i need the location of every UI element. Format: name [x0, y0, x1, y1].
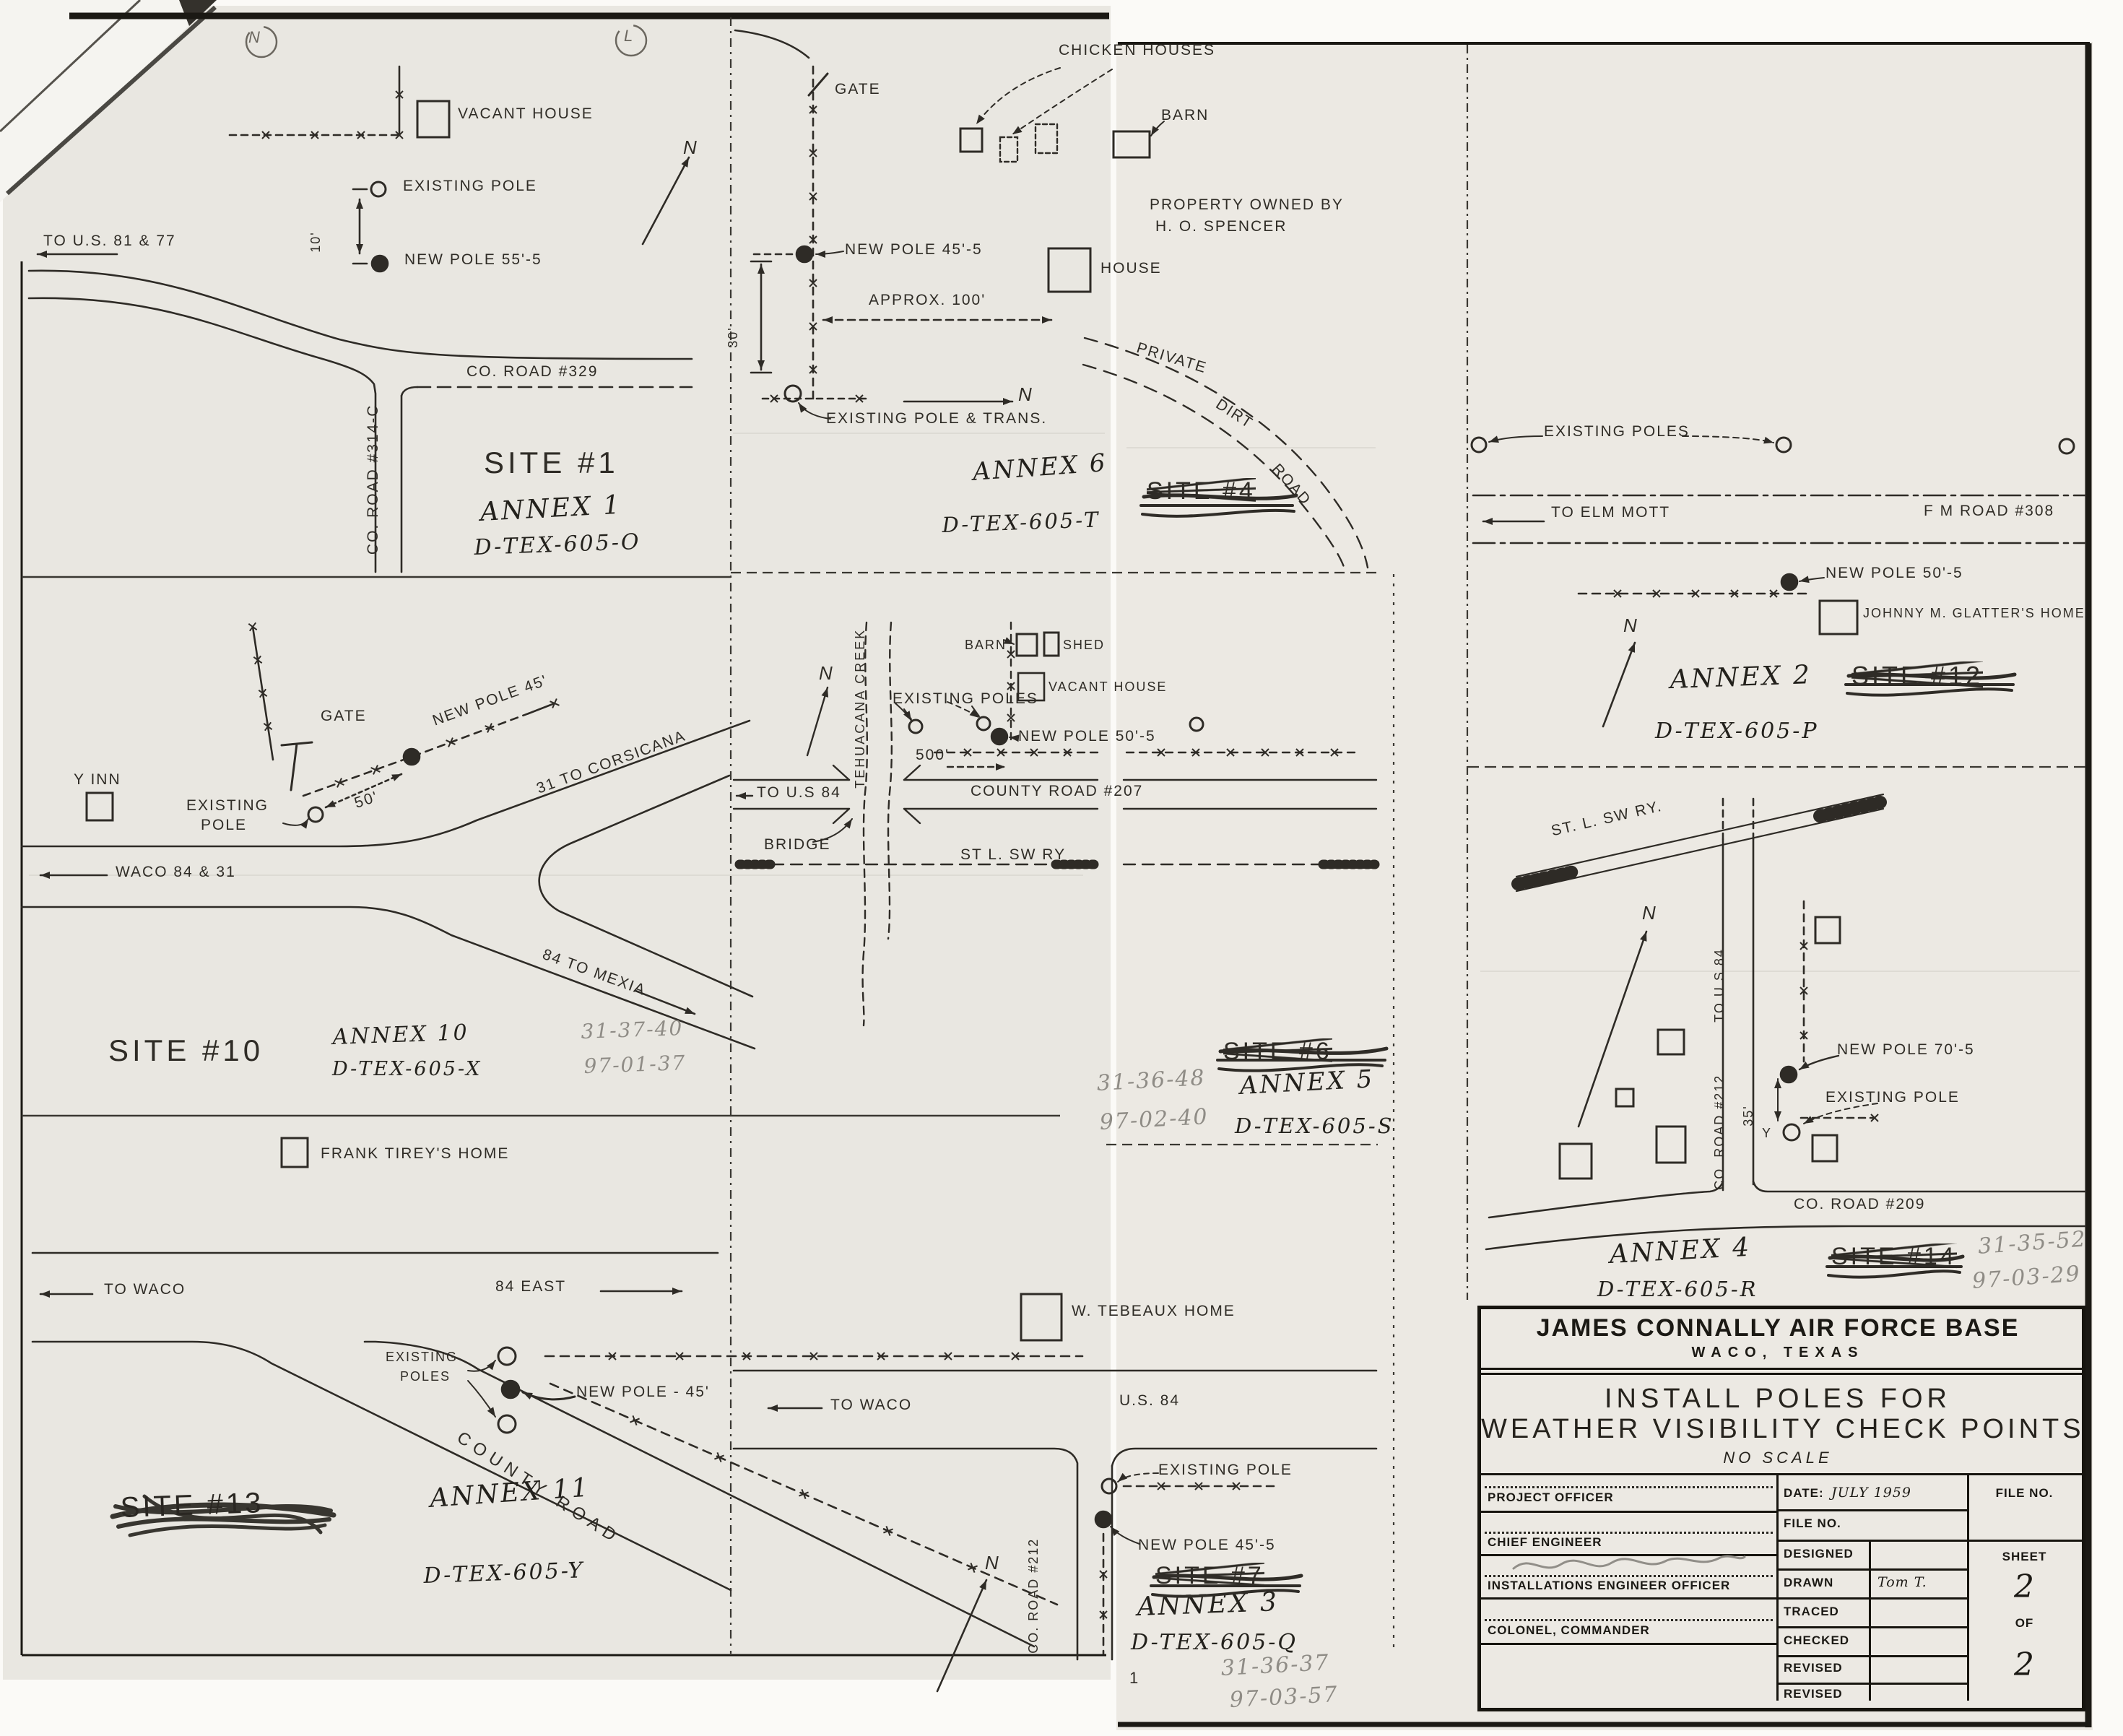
- title-block-hline: [1481, 1643, 1776, 1645]
- site10-ref-b: 97-01-37: [583, 1052, 687, 1078]
- annex5-bridge-label: BRIDGE: [764, 836, 831, 853]
- annex2-glatter-label: JOHNNY M. GLATTER'S HOME: [1863, 607, 2085, 621]
- annex4-new-pole-label: NEW POLE 70'-5: [1837, 1041, 1975, 1058]
- title-block-table-top: [1481, 1473, 2082, 1475]
- title-block-hline: [1776, 1626, 1967, 1628]
- title-block-hline: [1776, 1597, 1967, 1600]
- annex11-new-pole-label: NEW POLE - 45': [576, 1384, 710, 1400]
- site1-co-road-314-label: CO. ROAD #314-C: [365, 404, 381, 555]
- annex6-barn-label: BARN: [1161, 107, 1209, 123]
- title-block-drawn: DRAWN: [1784, 1576, 1833, 1590]
- annex3-ref-b: 97-03-57: [1229, 1683, 1339, 1712]
- site1-drawing-no: D-TEX-605-O: [474, 530, 641, 560]
- annex4-y-mark: Y: [1762, 1127, 1772, 1141]
- annex2-elm-mott-label: TO ELM MOTT: [1551, 504, 1670, 521]
- annex3-us84-label: U.S. 84: [1119, 1392, 1180, 1409]
- title-block-organization: JAMES CONNALLY AIR FORCE BASE: [1481, 1314, 2075, 1342]
- annex5-shed-label: SHED: [1063, 638, 1105, 653]
- title-block-file-no: FILE NO.: [1967, 1486, 2082, 1501]
- annex11-drawing-no: D-TEX-605-Y: [423, 1558, 585, 1588]
- site1-north-label: N: [683, 137, 698, 158]
- title-block-drawn-value: Tom T.: [1877, 1574, 1927, 1590]
- annex3-tebeaux-label: W. TEBEAUX HOME: [1072, 1303, 1236, 1319]
- title-block-line1: INSTALL POLES FOR: [1481, 1384, 2075, 1415]
- site10-drawing-no: D-TEX-605-X: [332, 1059, 482, 1080]
- annex3-annex-label: ANNEX 3: [1137, 1588, 1280, 1621]
- site10-annex-label: ANNEX 10: [332, 1020, 469, 1049]
- title-block-vline: [1776, 1473, 1779, 1701]
- annex5-creek-label: TEHUACANA CREEK: [854, 628, 868, 789]
- title-block-file-no-2: FILE NO.: [1784, 1516, 1841, 1531]
- annex2-existing-poles-label: EXISTING POLES: [1544, 423, 1690, 440]
- punch-letter-left: N: [248, 29, 261, 46]
- title-block-scale-note: NO SCALE: [1481, 1449, 2075, 1467]
- annex4-site-struck: SITE #14: [1831, 1244, 1957, 1270]
- title-block-hline: [1776, 1568, 1967, 1571]
- annex5-ref-b: 97-02-40: [1099, 1105, 1209, 1134]
- site1-existing-pole-label: EXISTING POLE: [403, 178, 537, 194]
- annex6-property-line1: PROPERTY OWNED BY: [1150, 196, 1344, 213]
- title-block-hline: [1776, 1655, 1967, 1657]
- annex3-drawing-no: D-TEX-605-Q: [1131, 1631, 1298, 1654]
- site10-ref-a: 31-37-40: [581, 1017, 684, 1043]
- annex6-property-line2: H. O. SPENCER: [1155, 218, 1287, 235]
- scanned-drawing-sheet: N L VACANT HOUSE TO U.S. 81 & 77 EXISTIN…: [0, 0, 2123, 1736]
- signature-dotted-line: [1485, 1619, 1773, 1621]
- annex2-new-pole-label: NEW POLE 50'-5: [1825, 565, 1963, 581]
- annex2-north-label: N: [1623, 615, 1638, 636]
- annex5-barn-label: BARN: [965, 638, 1007, 653]
- site1-dim-10: 10': [309, 231, 324, 252]
- title-block-vline: [1869, 1540, 1871, 1701]
- annex11-east-label: 84 EAST: [495, 1278, 566, 1295]
- site1-new-pole-label: NEW POLE 55'-5: [404, 251, 542, 268]
- title-block-hline: [1481, 1597, 1776, 1600]
- title-block-hline: [1481, 1511, 1776, 1513]
- title-block-revised-2: REVISED: [1784, 1687, 1843, 1701]
- title-block-date-label: DATE:: [1784, 1486, 1824, 1501]
- title-block-location: WACO, TEXAS: [1481, 1345, 2075, 1361]
- annex3-north-label: N: [985, 1553, 1000, 1574]
- annex2-drawing-no: D-TEX-605-P: [1655, 719, 1819, 743]
- site10-waco-label: WACO 84 & 31: [116, 864, 236, 880]
- annex6-house-label: HOUSE: [1100, 260, 1162, 277]
- title-block-hline: [1967, 1540, 2082, 1542]
- title-block-project-officer: PROJECT OFFICER: [1488, 1490, 1614, 1505]
- annex2-site-struck: SITE #12: [1851, 661, 1983, 690]
- signature-dotted-line: [1485, 1575, 1773, 1577]
- site1-co-road-329-label: CO. ROAD #329: [466, 363, 598, 380]
- annex4-co-road-209-label: CO. ROAD #209: [1794, 1196, 1925, 1212]
- punch-letter-right: L: [624, 27, 634, 45]
- site1-vacant-house-label: VACANT HOUSE: [458, 105, 594, 122]
- annex11-existing-line2: POLES: [400, 1370, 451, 1384]
- annex6-gate-label: GATE: [835, 81, 881, 97]
- title-block-divider: [1481, 1368, 2082, 1370]
- annex5-county-road-207-label: COUNTY ROAD #207: [971, 783, 1143, 799]
- annex5-railway-label: ST L. SW RY: [960, 846, 1066, 863]
- annex11-site-struck: SITE #13: [120, 1487, 264, 1524]
- annex11-existing-line1: EXISTING: [386, 1350, 458, 1365]
- annex3-new-pole-label: NEW POLE 45'-5: [1138, 1537, 1276, 1553]
- title-block-checked: CHECKED: [1784, 1633, 1849, 1648]
- title-block-line2: WEATHER VISIBILITY CHECK POINTS: [1481, 1414, 2075, 1445]
- annex5-to-us84-label: TO U.S 84: [757, 784, 841, 801]
- annex3-co-road-212-label: CO. ROAD #212: [1027, 1538, 1041, 1654]
- title-block-of-label: OF: [1967, 1616, 2082, 1631]
- signature-dotted-line: [1485, 1486, 1773, 1488]
- signature-dotted-line: [1485, 1532, 1773, 1534]
- annex5-drawing-no: D-TEX-605-S: [1235, 1115, 1394, 1138]
- annex6-dim-30: 30': [726, 326, 741, 347]
- annex4-existing-pole-label: EXISTING POLE: [1825, 1089, 1960, 1106]
- annex6-north-label: N: [1018, 384, 1033, 405]
- annex4-north-label: N: [1642, 903, 1657, 924]
- annex3-existing-pole-label: EXISTING POLE: [1158, 1462, 1293, 1478]
- annex5-north-label: N: [819, 663, 834, 684]
- site1-to-us-label: TO U.S. 81 & 77: [43, 233, 176, 249]
- annex3-site-struck: SITE #7: [1155, 1563, 1264, 1589]
- annex5-site-struck: SITE #6: [1223, 1038, 1332, 1065]
- title-block-sheet-label: SHEET: [1967, 1550, 2082, 1564]
- site10-existing-line1: EXISTING: [186, 797, 269, 814]
- site10-y-inn-label: Y INN: [74, 771, 121, 788]
- annex4-to-us84-label: TO U S 84: [1713, 948, 1727, 1023]
- annex4-co-road-212-label: CO. ROAD #212: [1713, 1075, 1727, 1190]
- annex2-annex-label: ANNEX 2: [1670, 661, 1812, 694]
- annex6-chicken-houses-label: CHICKEN HOUSES: [1059, 42, 1215, 58]
- annex6-existing-label: EXISTING POLE & TRANS.: [826, 410, 1047, 427]
- tirey-home-label: FRANK TIREY'S HOME: [321, 1145, 509, 1162]
- annex6-new-pole-label: NEW POLE 45'-5: [845, 241, 983, 258]
- title-block-sheet-total: 2: [1967, 1646, 2082, 1683]
- annex5-ref-a: 31-36-48: [1096, 1066, 1206, 1095]
- title-block-divider: [1481, 1373, 2082, 1375]
- site10-existing-line2: POLE: [201, 817, 247, 833]
- annex3-to-waco-label: TO WACO: [830, 1397, 912, 1413]
- title-block-chief-engineer: CHIEF ENGINEER: [1488, 1535, 1602, 1550]
- title-block-traced: TRACED: [1784, 1605, 1839, 1619]
- annex11-to-waco-label: TO WACO: [104, 1281, 186, 1298]
- annex4-drawing-no: D-TEX-605-R: [1597, 1278, 1758, 1301]
- title-block-revised-1: REVISED: [1784, 1661, 1843, 1675]
- site10-title: SITE #10: [108, 1034, 264, 1067]
- annex6-approx-label: APPROX. 100': [869, 292, 986, 308]
- title-block-hline: [1776, 1683, 1967, 1685]
- title-block-hline: [1481, 1554, 1776, 1556]
- annex3-ref-a: 31-36-37: [1220, 1651, 1330, 1680]
- annex5-existing-poles-label: EXISTING POLES: [893, 690, 1038, 707]
- annex5-dim-500: 500': [916, 747, 950, 763]
- annex3-page-no: 1: [1129, 1670, 1139, 1687]
- title-block-installations-officer: INSTALLATIONS ENGINEER OFFICER: [1488, 1579, 1730, 1593]
- site1-title: SITE #1: [484, 446, 619, 479]
- annex4-dim-35: 35': [1742, 1105, 1756, 1126]
- title-block-hline: [1776, 1509, 1967, 1511]
- title-block-hline: [1776, 1540, 1967, 1542]
- title-block-date-value: JULY 1959: [1831, 1485, 1911, 1501]
- title-block-designed: DESIGNED: [1784, 1547, 1854, 1561]
- title-block-commander: COLONEL, COMMANDER: [1488, 1623, 1650, 1638]
- annex6-site-struck: SITE #4: [1147, 478, 1256, 505]
- annex2-fm-road-308-label: F M ROAD #308: [1924, 503, 2054, 519]
- site10-gate-label: GATE: [321, 708, 367, 724]
- annex5-new-pole-label: NEW POLE 50'-5: [1018, 728, 1156, 745]
- annex5-vacant-house-label: VACANT HOUSE: [1049, 680, 1167, 695]
- title-block-sheet-no: 2: [1967, 1568, 2082, 1605]
